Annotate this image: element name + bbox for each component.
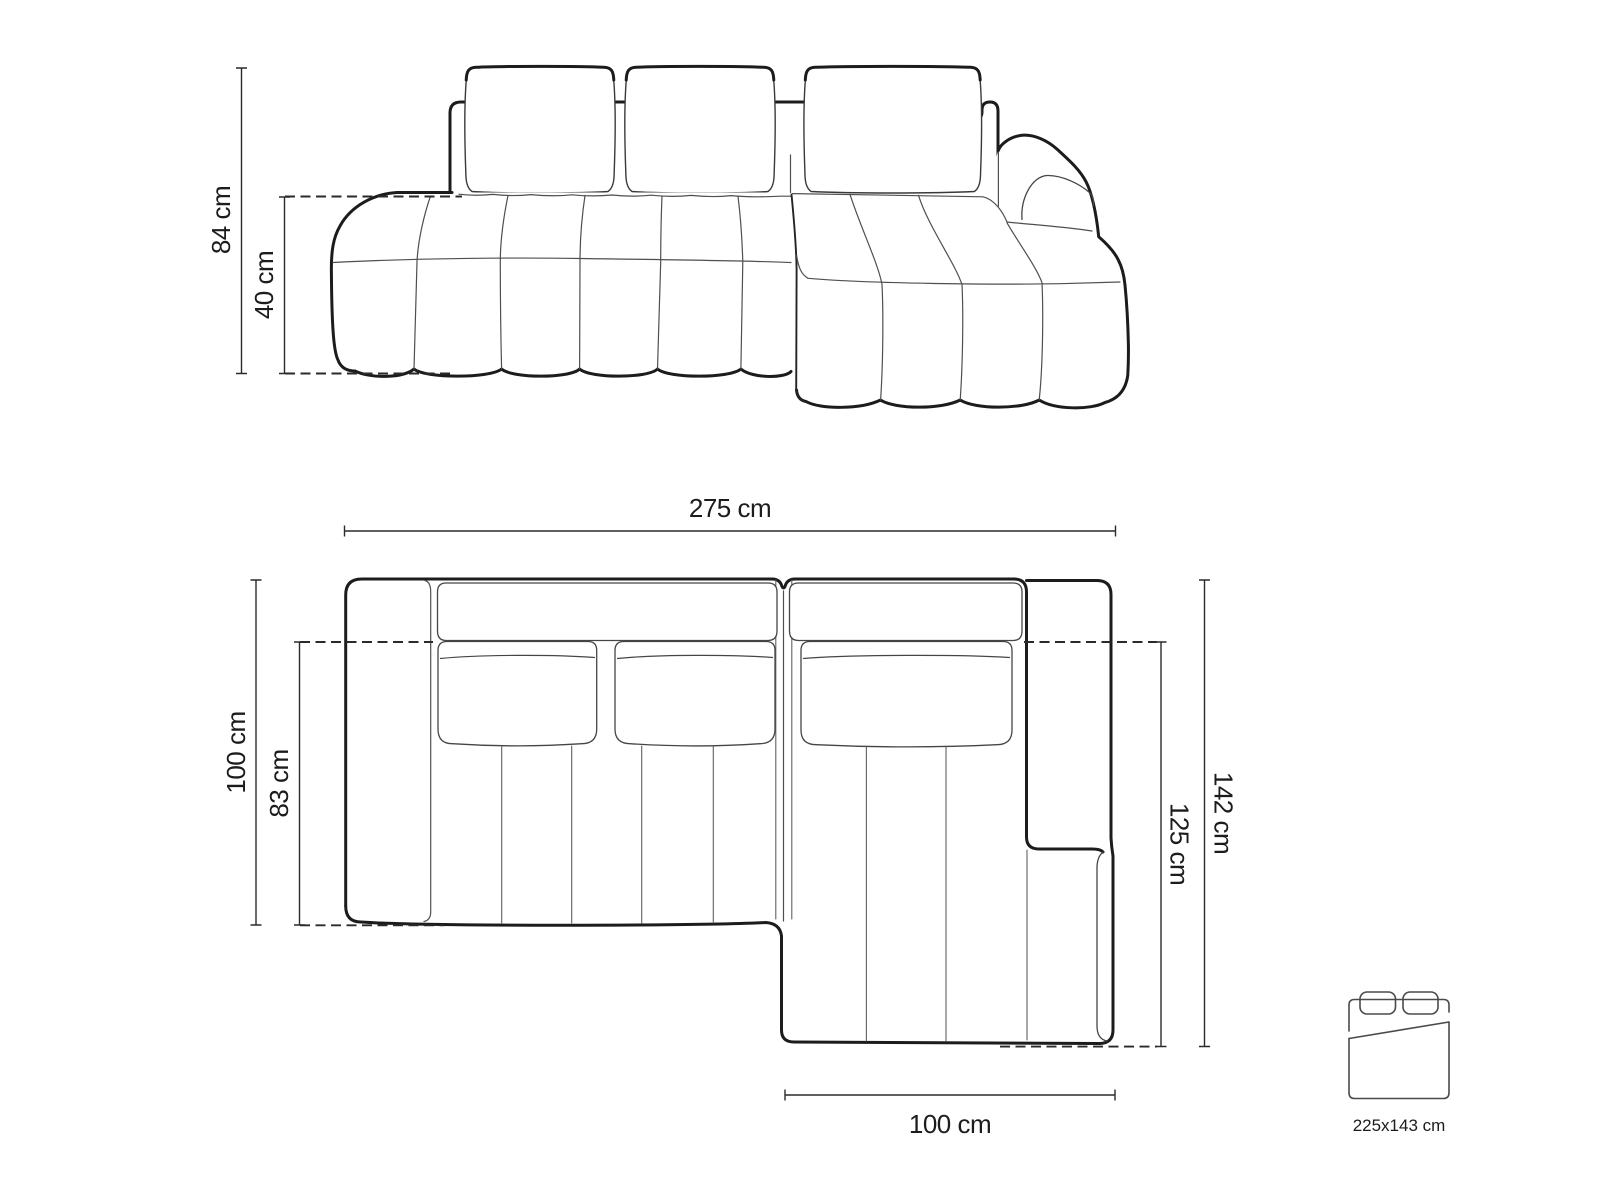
svg-text:83 cm: 83 cm bbox=[264, 749, 294, 817]
svg-text:84 cm: 84 cm bbox=[206, 186, 236, 254]
svg-text:100 cm: 100 cm bbox=[909, 1109, 991, 1139]
svg-text:100 cm: 100 cm bbox=[221, 711, 251, 793]
svg-text:225x143 cm: 225x143 cm bbox=[1353, 1116, 1446, 1135]
svg-text:142 cm: 142 cm bbox=[1209, 772, 1239, 854]
svg-text:275 cm: 275 cm bbox=[689, 493, 771, 523]
svg-text:40 cm: 40 cm bbox=[249, 251, 279, 319]
svg-text:125 cm: 125 cm bbox=[1165, 803, 1195, 885]
